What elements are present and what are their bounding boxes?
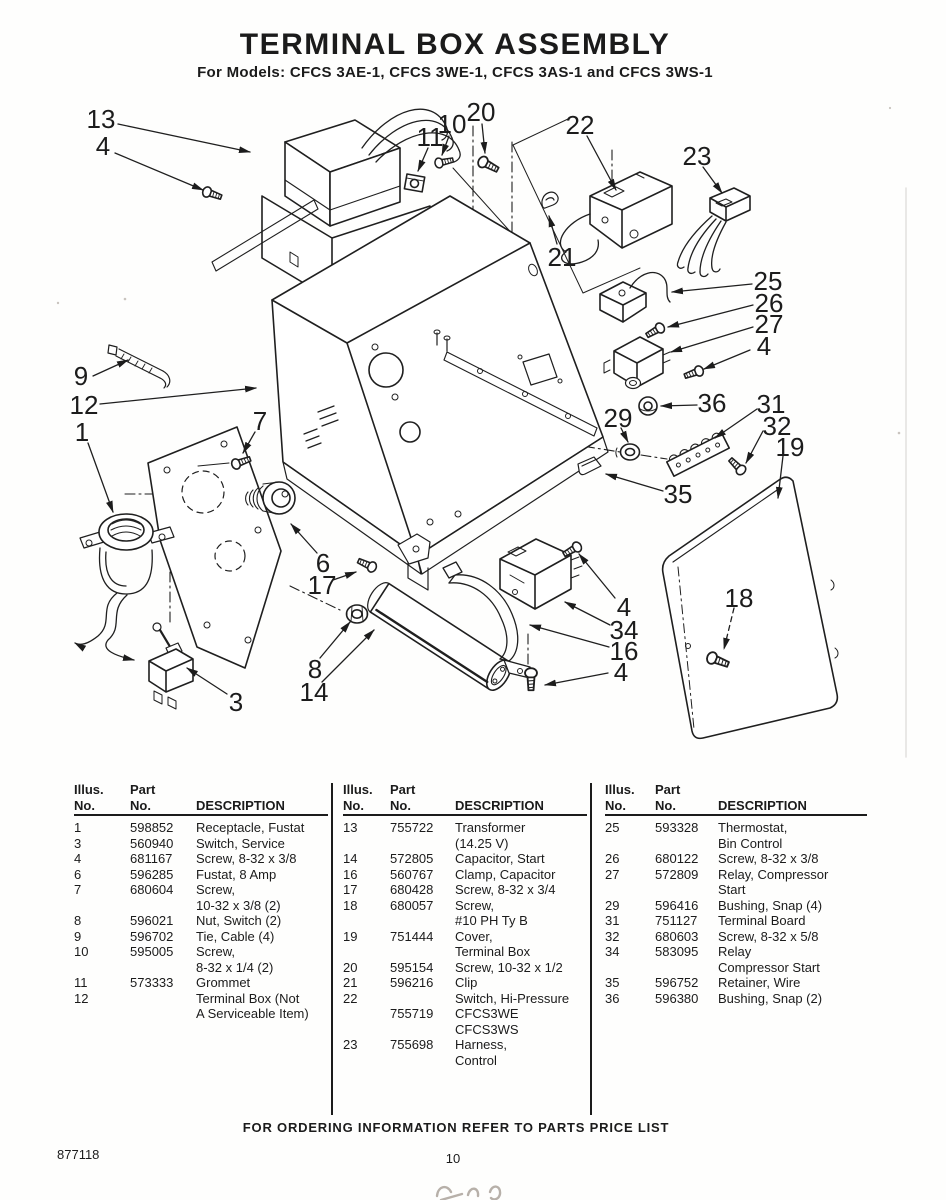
callout-1: 1 (75, 417, 89, 447)
illus-no: 26 (605, 851, 655, 867)
part-no: 573333 (130, 975, 196, 991)
part-no: 751444 (390, 929, 455, 960)
table-row: 23 755698 Harness, Control (343, 1037, 587, 1068)
illus-no: 7 (74, 882, 130, 913)
table-row: 17 680428 Screw, 8-32 x 3/4 (343, 882, 587, 898)
part-no: 596021 (130, 913, 196, 929)
start-capacitor (363, 579, 516, 695)
callout-21: 21 (548, 242, 577, 272)
table-row: 11 573333 Grommet (74, 975, 328, 991)
part-description: Relay Compressor Start (718, 944, 867, 975)
part-description: Capacitor, Start (455, 851, 587, 867)
header-description: DESCRIPTION (196, 798, 328, 814)
screw-26 (644, 321, 666, 340)
callout-9: 9 (74, 361, 88, 391)
part-description: Screw, 8-32 x 3/8 (196, 851, 328, 867)
part-description: Screw, 8-32 x 3/8 (718, 851, 867, 867)
part-no: 755698 (390, 1037, 455, 1068)
part-no: 596380 (655, 991, 718, 1007)
callout-29: 29 (604, 403, 633, 433)
part-no: 680122 (655, 851, 718, 867)
callout-22: 22 (566, 110, 595, 140)
illus-no: 11 (74, 975, 130, 991)
screw-32 (727, 456, 748, 477)
illus-no: 18 (343, 898, 390, 929)
table-row: 4 681167 Screw, 8-32 x 3/8 (74, 851, 328, 867)
callout-3: 3 (229, 687, 243, 717)
header-description: DESCRIPTION (718, 798, 867, 814)
illus-no: 27 (605, 867, 655, 898)
table-row: 26 680122 Screw, 8-32 x 3/8 (605, 851, 867, 867)
cable-tie (108, 345, 170, 388)
part-description: Screw, 8-32 x 1/4 (2) (196, 944, 328, 975)
header-description: DESCRIPTION (455, 798, 587, 814)
callout-13: 13 (87, 104, 116, 134)
clip (542, 192, 558, 208)
illus-no: 13 (343, 820, 390, 851)
header-illus-no: Illus. No. (605, 782, 655, 813)
illus-no: 22 (343, 991, 390, 1007)
illus-no: 10 (74, 944, 130, 975)
illus-no: 21 (343, 975, 390, 991)
table-header: Illus. No. Part No. DESCRIPTION (343, 782, 587, 816)
table-row: 22 Switch, Hi-Pressure (343, 991, 587, 1007)
part-description: Terminal Box (Not A Serviceable Item) (196, 991, 328, 1022)
terminal-board (665, 431, 729, 476)
grommet-11 (404, 174, 424, 192)
illus-no: 25 (605, 820, 655, 851)
table-header: Illus. No. Part No. DESCRIPTION (74, 782, 328, 816)
part-description: Screw, 8-32 x 5/8 (718, 929, 867, 945)
switch-nut (347, 605, 368, 623)
table-row: 1 598852 Receptacle, Fustat (74, 820, 328, 836)
part-no: 595154 (390, 960, 455, 976)
table-row: 19 751444 Cover, Terminal Box (343, 929, 587, 960)
part-no: 755722 (390, 820, 455, 851)
ordering-note: FOR ORDERING INFORMATION REFER TO PARTS … (0, 1120, 912, 1135)
screw-17 (356, 556, 378, 574)
illus-no: 23 (343, 1037, 390, 1068)
part-no (390, 991, 455, 1007)
part-no: 596285 (130, 867, 196, 883)
table-row: 8 596021 Nut, Switch (2) (74, 913, 328, 929)
part-description: Screw, 8-32 x 3/4 (455, 882, 587, 898)
parts-table-1: Illus. No. Part No. DESCRIPTION 1 598852… (74, 782, 328, 1022)
part-description: Relay, Compressor Start (718, 867, 867, 898)
illus-no: 34 (605, 944, 655, 975)
header-part-no: Part No. (130, 782, 196, 813)
part-description: Tie, Cable (4) (196, 929, 328, 945)
part-no: 593328 (655, 820, 718, 851)
callout-19: 19 (776, 432, 805, 462)
table-row: 27 572809 Relay, Compressor Start (605, 867, 867, 898)
part-description: Grommet (196, 975, 328, 991)
table-row: 32 680603 Screw, 8-32 x 5/8 (605, 929, 867, 945)
table-header: Illus. No. Part No. DESCRIPTION (605, 782, 867, 816)
harness-connector (677, 188, 750, 276)
screw-4-relay27 (683, 365, 705, 381)
header-part-no: Part No. (390, 782, 455, 813)
part-no: 560767 (390, 867, 455, 883)
illus-no: 35 (605, 975, 655, 991)
page-number: 10 (0, 1151, 906, 1166)
part-description: Switch, Hi-Pressure (455, 991, 587, 1007)
screw-10 (434, 155, 454, 168)
parts-table-3: Illus. No. Part No. DESCRIPTION 25 59332… (605, 782, 867, 1006)
part-description: Fustat, 8 Amp (196, 867, 328, 883)
illus-no: 8 (74, 913, 130, 929)
table-row: 13 755722 Transformer (14.25 V) (343, 820, 587, 851)
part-no: 596416 (655, 898, 718, 914)
part-description: Screw, #10 PH Ty B (455, 898, 587, 929)
screw-4-bottom (525, 668, 537, 690)
part-description: Thermostat, Bin Control (718, 820, 867, 851)
mounting-plate (148, 427, 281, 668)
table-divider-1 (331, 783, 333, 1115)
illus-no: 20 (343, 960, 390, 976)
illus-no: 1 (74, 820, 130, 836)
part-description: Clip (455, 975, 587, 991)
table-row: 7 680604 Screw, 10-32 x 3/8 (2) (74, 882, 328, 913)
part-no: 596702 (130, 929, 196, 945)
callout-7: 7 (253, 406, 267, 436)
table-row: 9 596702 Tie, Cable (4) (74, 929, 328, 945)
part-description: Terminal Board (718, 913, 867, 929)
part-description: Transformer (14.25 V) (455, 820, 587, 851)
part-description: Bushing, Snap (4) (718, 898, 867, 914)
part-description: Bushing, Snap (2) (718, 991, 867, 1007)
bushing-36 (639, 397, 657, 415)
illus-no: 12 (74, 991, 130, 1022)
table-row: 31 751127 Terminal Board (605, 913, 867, 929)
header-illus-no: Illus. No. (74, 782, 130, 813)
illus-no: 29 (605, 898, 655, 914)
parts-table-2: Illus. No. Part No. DESCRIPTION 13 75572… (343, 782, 587, 1068)
illus-no: 32 (605, 929, 655, 945)
part-no: 751127 (655, 913, 718, 929)
callout-17: 17 (308, 570, 337, 600)
callout-4b: 4 (757, 331, 771, 361)
part-no: 598852 (130, 820, 196, 836)
illus-no: 3 (74, 836, 130, 852)
callout-14: 14 (300, 677, 329, 707)
illus-no: 36 (605, 991, 655, 1007)
table-row: 34 583095 Relay Compressor Start (605, 944, 867, 975)
part-no: 583095 (655, 944, 718, 975)
hi-pressure-switch (560, 172, 672, 264)
illus-no: 19 (343, 929, 390, 960)
part-no: 681167 (130, 851, 196, 867)
part-description: Cover, Terminal Box (455, 929, 587, 960)
thermostat (600, 273, 670, 322)
handwritten-mark (437, 1187, 500, 1200)
callout-10: 10 (438, 109, 467, 139)
part-no: 680604 (130, 882, 196, 913)
illus-no (343, 1006, 390, 1037)
part-description: Nut, Switch (2) (196, 913, 328, 929)
screw-20 (476, 155, 500, 175)
illus-no: 4 (74, 851, 130, 867)
table-row: 36 596380 Bushing, Snap (2) (605, 991, 867, 1007)
illus-no: 14 (343, 851, 390, 867)
table-row: 16 560767 Clamp, Capacitor (343, 867, 587, 883)
table-row: 14 572805 Capacitor, Start (343, 851, 587, 867)
illus-no: 6 (74, 867, 130, 883)
table-row: 3 560940 Switch, Service (74, 836, 328, 852)
part-description: Switch, Service (196, 836, 328, 852)
callout-20: 20 (467, 97, 496, 127)
part-description: Receptacle, Fustat (196, 820, 328, 836)
part-no: 560940 (130, 836, 196, 852)
illus-no: 17 (343, 882, 390, 898)
receptacle-fustat (75, 514, 174, 660)
part-description: CFCS3WE CFCS3WS (455, 1006, 587, 1037)
table-row: 10 595005 Screw, 8-32 x 1/4 (2) (74, 944, 328, 975)
callout-12: 12 (70, 390, 99, 420)
table-row: 12 Terminal Box (Not A Serviceable Item) (74, 991, 328, 1022)
callout-18: 18 (725, 583, 754, 613)
table-row: 35 596752 Retainer, Wire (605, 975, 867, 991)
relay-27 (604, 337, 670, 389)
illus-no: 9 (74, 929, 130, 945)
part-no (130, 991, 196, 1022)
table-row: 20 595154 Screw, 10-32 x 1/2 (343, 960, 587, 976)
part-no: 680057 (390, 898, 455, 929)
table-row: 21 596216 Clip (343, 975, 587, 991)
part-description: Retainer, Wire (718, 975, 867, 991)
illus-no: 31 (605, 913, 655, 929)
table-row: 25 593328 Thermostat, Bin Control (605, 820, 867, 851)
table-row: 18 680057 Screw, #10 PH Ty B (343, 898, 587, 929)
retainer-35 (578, 457, 601, 475)
part-description: Screw, 10-32 x 3/8 (2) (196, 882, 328, 913)
screw-4-transformer (201, 186, 223, 202)
table-row: 755719 CFCS3WE CFCS3WS (343, 1006, 587, 1037)
illus-no: 16 (343, 867, 390, 883)
part-no: 596752 (655, 975, 718, 991)
part-description: Harness, Control (455, 1037, 587, 1068)
part-no: 572809 (655, 867, 718, 898)
part-description: Screw, 10-32 x 1/2 (455, 960, 587, 976)
part-no: 596216 (390, 975, 455, 991)
screw-4-relay34 (561, 540, 583, 559)
header-illus-no: Illus. No. (343, 782, 390, 813)
callout-4a: 4 (96, 131, 110, 161)
header-part-no: Part No. (655, 782, 718, 813)
part-no: 680428 (390, 882, 455, 898)
table-divider-2 (590, 783, 592, 1115)
table-row: 6 596285 Fustat, 8 Amp (74, 867, 328, 883)
callout-23: 23 (683, 141, 712, 171)
part-description: Clamp, Capacitor (455, 867, 587, 883)
part-no: 595005 (130, 944, 196, 975)
service-switch (149, 623, 193, 709)
part-no: 755719 (390, 1006, 455, 1037)
table-row: 29 596416 Bushing, Snap (4) (605, 898, 867, 914)
callout-36: 36 (698, 388, 727, 418)
callout-4d: 4 (614, 657, 628, 687)
part-no: 680603 (655, 929, 718, 945)
manual-page: TERMINAL BOX ASSEMBLY For Models: CFCS 3… (0, 0, 946, 1200)
callout-35: 35 (664, 479, 693, 509)
part-no: 572805 (390, 851, 455, 867)
